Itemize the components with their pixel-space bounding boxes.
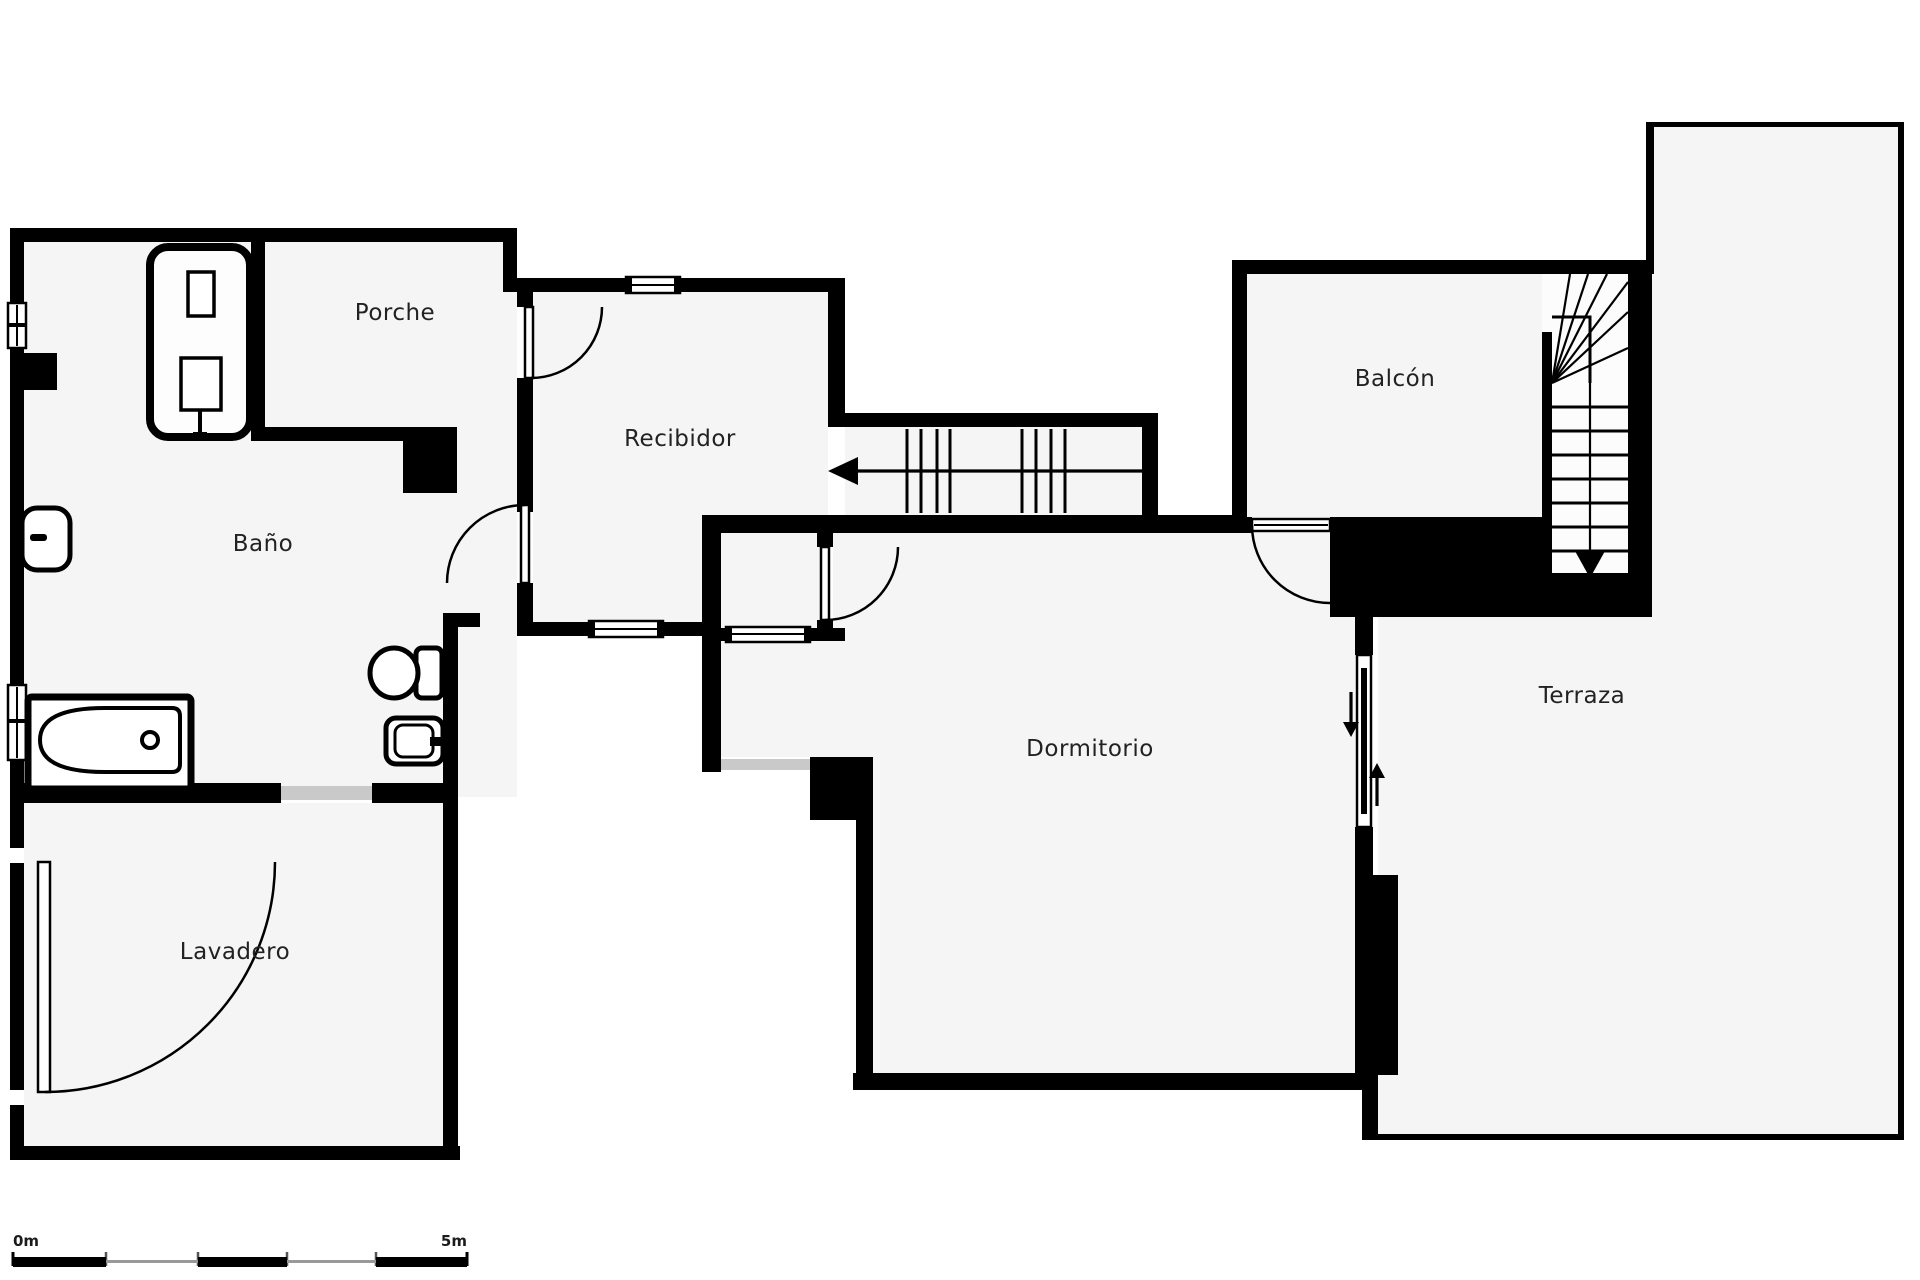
outline-right [1898, 122, 1904, 1140]
label-lavadero: Lavadero [180, 939, 290, 965]
wall-bano-recibidor-1 [517, 292, 533, 307]
room-floor-porche [265, 242, 503, 427]
wall-alcove-left [702, 515, 721, 772]
wall-porche-right [503, 228, 517, 292]
opening-dormitorio [721, 759, 810, 770]
room-floor-upper-right [1652, 127, 1898, 1134]
wall-corridor-right [1142, 413, 1158, 533]
bathtub-drain [142, 732, 158, 748]
label-porche: Porche [355, 300, 435, 326]
wall-recibidor-right [828, 278, 845, 427]
wall-lavadero-right [443, 613, 458, 1160]
wall-terraza-left-lower [1362, 1075, 1378, 1140]
floorplan-svg: Porche Recibidor Baño Lavadero Dormitori… [0, 0, 1920, 1280]
wall-left-3 [10, 758, 24, 803]
wall-bano-right-stub [443, 613, 480, 627]
wall-lavadero-left-1 [10, 803, 24, 848]
wall-porche-step [403, 441, 457, 493]
toilet [370, 648, 442, 698]
wall-recibidor-bottom-1 [517, 622, 591, 636]
wall-dorm-terraza-1 [1355, 533, 1373, 655]
wall-lavadero-left-2 [10, 863, 24, 1090]
scale-bar: 0m 5m [13, 1232, 467, 1267]
door-sliding-dormitorio-terraza [1357, 655, 1371, 827]
wall-lavadero-bottom [10, 1146, 460, 1160]
wall-corridor-top [828, 413, 1158, 427]
scale-start-label: 0m [13, 1232, 39, 1250]
wall-opening-end-left [702, 757, 721, 772]
bidet [22, 508, 70, 570]
sink-faucet [430, 737, 444, 746]
room-floor-lavadero [24, 803, 443, 1146]
room-floor-dormitorio-top [833, 533, 1355, 641]
wall-pier-bano [24, 353, 57, 390]
wall-recibidor-top-2 [678, 278, 838, 292]
wall-recibidor-bottom-2 [662, 622, 702, 636]
wall-dorm-corner [810, 757, 873, 820]
corridor-left-arrow-icon [828, 457, 858, 485]
wall-recibidor-top-1 [517, 278, 628, 292]
sink [386, 718, 451, 764]
window-recibidor-bottom [589, 621, 663, 637]
shower [150, 247, 250, 438]
wall-alcove-bottom-1 [702, 628, 728, 641]
outline-top [1646, 122, 1903, 127]
wall-dorm-bottom [853, 1073, 1363, 1090]
floorplan-canvas: Porche Recibidor Baño Lavadero Dormitori… [0, 0, 1920, 1280]
window-bano-left-lower [8, 685, 26, 760]
room-floor-alcove [721, 533, 817, 628]
room-floor-balcon [1247, 274, 1542, 517]
label-recibidor: Recibidor [624, 426, 736, 452]
room-floor-dormitorio-pocket [721, 641, 873, 757]
label-balcon: Balcón [1355, 366, 1436, 392]
wall-dorm-terraza-3 [1355, 875, 1398, 1075]
wall-stairwell-left [1542, 332, 1552, 517]
wall-left-1 [10, 228, 24, 305]
wall-dorm-terraza-2 [1355, 827, 1373, 875]
label-terraza: Terraza [1538, 683, 1626, 709]
label-bano: Baño [233, 531, 294, 557]
wall-bano-recibidor-2 [517, 378, 533, 512]
wall-dorm-door-jamb-top [817, 533, 833, 547]
wall-dorm-door-jamb-bottom [817, 620, 833, 636]
scale-end-label: 5m [441, 1232, 467, 1250]
wall-dorm-left [856, 820, 873, 1080]
opening-bano-lavadero [281, 786, 372, 800]
window-recibidor-top [626, 277, 680, 293]
outline-bottom [1373, 1134, 1904, 1140]
wall-dormitorio-top [702, 515, 1245, 533]
wall-bano-bottom-2 [372, 783, 443, 803]
room-floors [24, 127, 1898, 1146]
bathtub [28, 697, 191, 789]
wall-balcon-top [1232, 260, 1652, 274]
room-floor-dormitorio [873, 641, 1355, 1073]
window-alcove-bottom [726, 627, 810, 642]
wall-balcon-left [1232, 260, 1247, 533]
label-dormitorio: Dormitorio [1026, 736, 1154, 762]
wall-porche-bottom [251, 427, 457, 441]
window-bano-left-upper [8, 303, 26, 348]
wall-upper-right-left-edge [1646, 122, 1654, 274]
wall-stairwell-right [1628, 274, 1652, 617]
wall-top [10, 228, 517, 242]
